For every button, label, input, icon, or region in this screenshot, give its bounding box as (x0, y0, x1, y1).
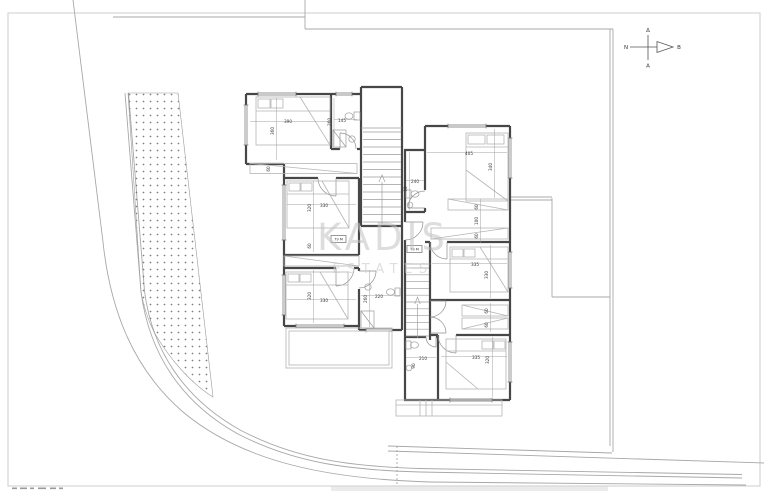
dimension-label: 60 (484, 322, 489, 328)
dimension-label: 210 (419, 356, 427, 361)
dimension-label: 260 (363, 295, 368, 303)
dimension-label: 330 (320, 298, 328, 303)
stair-left (361, 128, 402, 224)
dimension-label: 240 (411, 179, 419, 184)
floor-plan-drawing: 3903602601456033032060330320220260240904… (0, 0, 768, 491)
floor-plan-canvas: 3903602601456033032060330320220260240904… (0, 0, 768, 491)
dimension-label: 340 (488, 163, 493, 171)
compass-north-label: Β (677, 45, 681, 51)
dimension-label: 390 (284, 119, 292, 124)
dimension-label: 320 (307, 292, 312, 300)
dimension-label: 335 (471, 262, 479, 267)
dimension-label: 60 (474, 233, 479, 239)
dimension-label: 60 (474, 204, 479, 210)
dimension-label: 60 (307, 243, 312, 249)
compass-south-label: Ν (624, 45, 628, 51)
watermark-subtitle: ESTATES (332, 262, 433, 277)
dimension-label: 335 (472, 355, 480, 360)
watermark-title: KADIS (317, 216, 449, 259)
dimension-label: 330 (320, 203, 328, 208)
north-compass: Β Ν Δ Α (624, 28, 681, 70)
compass-west-label: Δ (646, 28, 650, 34)
dimension-label: 330 (484, 271, 489, 279)
road-curves (125, 93, 764, 486)
compass-east-label: Α (646, 64, 650, 70)
dimension-label: 260 (327, 118, 332, 126)
watermark: KADIS ESTATES (317, 216, 449, 277)
terraces (286, 328, 502, 416)
dimension-label: 220 (375, 294, 383, 299)
dimension-label: 320 (485, 356, 490, 364)
dimension-label: 60 (266, 166, 271, 172)
compass-arrow-icon (657, 42, 673, 53)
titleblock-strip (8, 486, 760, 491)
dimension-label: 145 (338, 118, 346, 123)
landscaping-hatch (128, 93, 213, 397)
dimension-label: 320 (307, 204, 312, 212)
dimension-label: 100 (474, 217, 479, 225)
dimension-label: 405 (465, 151, 473, 156)
dimension-label: 360 (270, 127, 275, 135)
dimension-label: 60 (484, 308, 489, 314)
dimension-label: 90 (411, 363, 416, 369)
dimension-label: 90 (403, 186, 408, 192)
